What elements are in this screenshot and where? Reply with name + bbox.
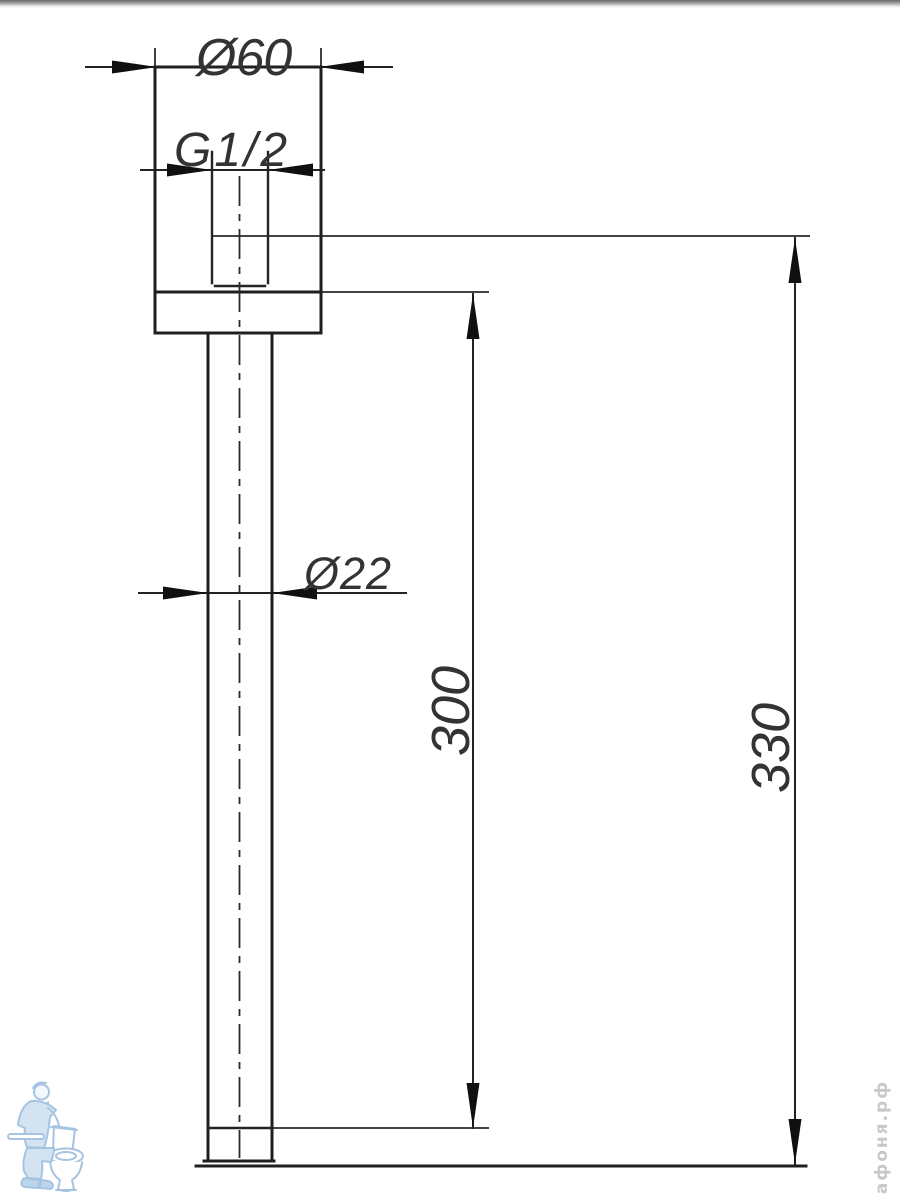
thread-size-label: G1/2 (174, 124, 290, 177)
flange-diameter-label: Ø60 (194, 29, 292, 87)
watermark-text: афоня.рф (872, 1080, 892, 1194)
plumber-boot-right (40, 1180, 53, 1189)
plumber-boot-left (21, 1178, 40, 1188)
dimension-arrowheads (112, 61, 802, 1165)
dimension-lines (85, 48, 810, 1165)
arm-length-label: 300 (421, 666, 481, 756)
plumber-with-toilet-logo-icon (8, 1083, 83, 1191)
arrowhead-flange-right (319, 61, 364, 74)
scanned-technical-drawing-page: Ø60 G1/2 Ø22 300 330 афоня.рф (0, 0, 900, 1200)
plumber-pipe-wrench (8, 1134, 44, 1139)
scan-edge-artifact (0, 0, 900, 9)
arrowhead-flange-left (112, 61, 157, 74)
arrowhead-arm-bottom (467, 1083, 480, 1128)
arrowhead-arm-top (467, 294, 480, 339)
arrowhead-overall-top (789, 238, 802, 283)
arrowhead-pipe-left (163, 587, 208, 600)
dimension-labels: Ø60 G1/2 Ø22 300 330 (174, 29, 801, 793)
shower-arm-technical-drawing: Ø60 G1/2 Ø22 300 330 афоня.рф (0, 0, 900, 1200)
toilet-bowl (50, 1161, 82, 1191)
plumber-jacket (18, 1101, 56, 1148)
arrowhead-overall-bottom (789, 1119, 802, 1164)
overall-length-label: 330 (741, 703, 801, 793)
shower-arm-outline (155, 67, 806, 1166)
pipe-diameter-label: Ø22 (302, 548, 392, 599)
plumber-head (34, 1085, 49, 1100)
